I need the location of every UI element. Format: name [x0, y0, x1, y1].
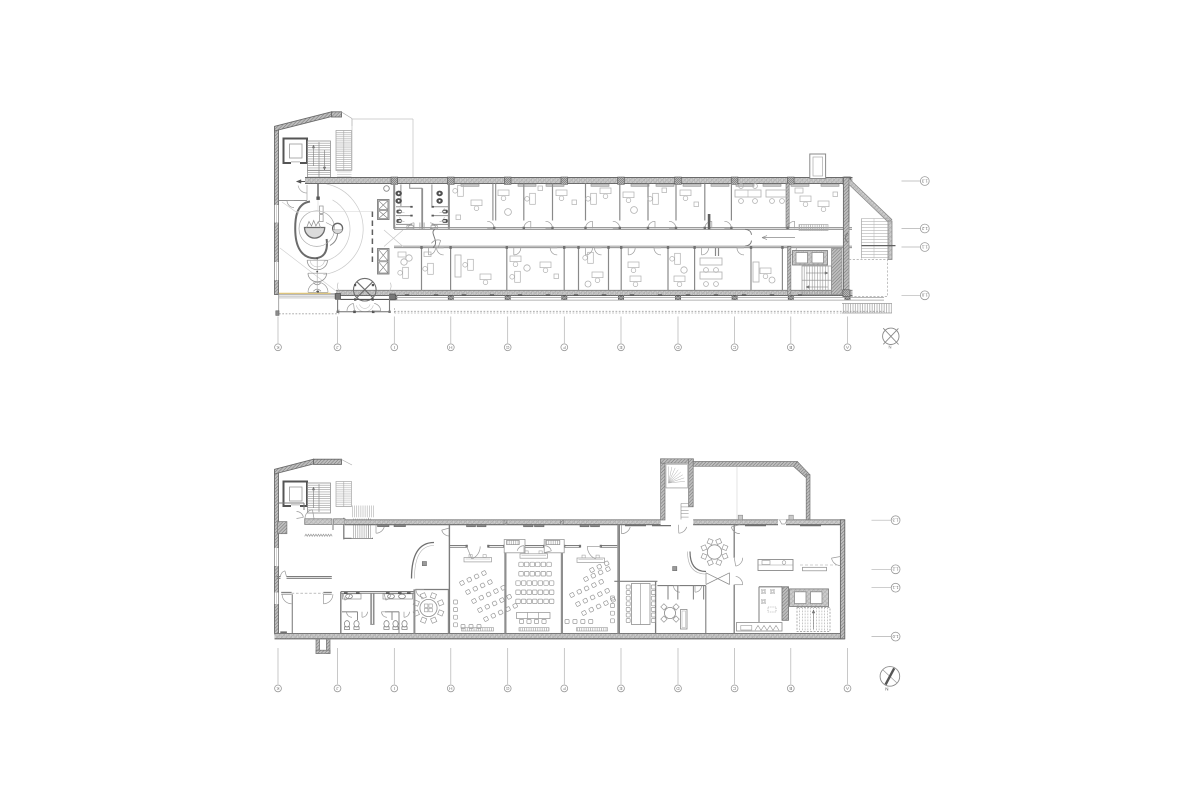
svg-text:1.0: 1.0 — [892, 634, 899, 639]
svg-text:J: J — [336, 345, 338, 350]
svg-text:1.3: 1.3 — [892, 518, 899, 523]
svg-text:1.0: 1.0 — [921, 293, 928, 298]
svg-text:F: F — [563, 345, 566, 350]
svg-text:1.2: 1.2 — [921, 226, 928, 231]
svg-text:E: E — [619, 345, 622, 350]
svg-text:N: N — [885, 687, 888, 692]
svg-text:H: H — [449, 345, 452, 350]
svg-text:I: I — [394, 345, 395, 350]
svg-text:E: E — [619, 686, 622, 691]
svg-text:F: F — [563, 686, 566, 691]
svg-text:H: H — [449, 686, 452, 691]
svg-text:I: I — [394, 686, 395, 691]
svg-text:1.2: 1.2 — [892, 567, 899, 572]
svg-text:G: G — [505, 345, 509, 350]
svg-text:B: B — [789, 345, 792, 350]
svg-text:B: B — [789, 686, 792, 691]
svg-text:1.1: 1.1 — [892, 585, 899, 590]
svg-text:N: N — [888, 345, 891, 350]
svg-text:1.1: 1.1 — [921, 244, 928, 249]
svg-text:1.3: 1.3 — [921, 178, 928, 183]
svg-text:J: J — [336, 686, 338, 691]
svg-text:G: G — [505, 686, 509, 691]
